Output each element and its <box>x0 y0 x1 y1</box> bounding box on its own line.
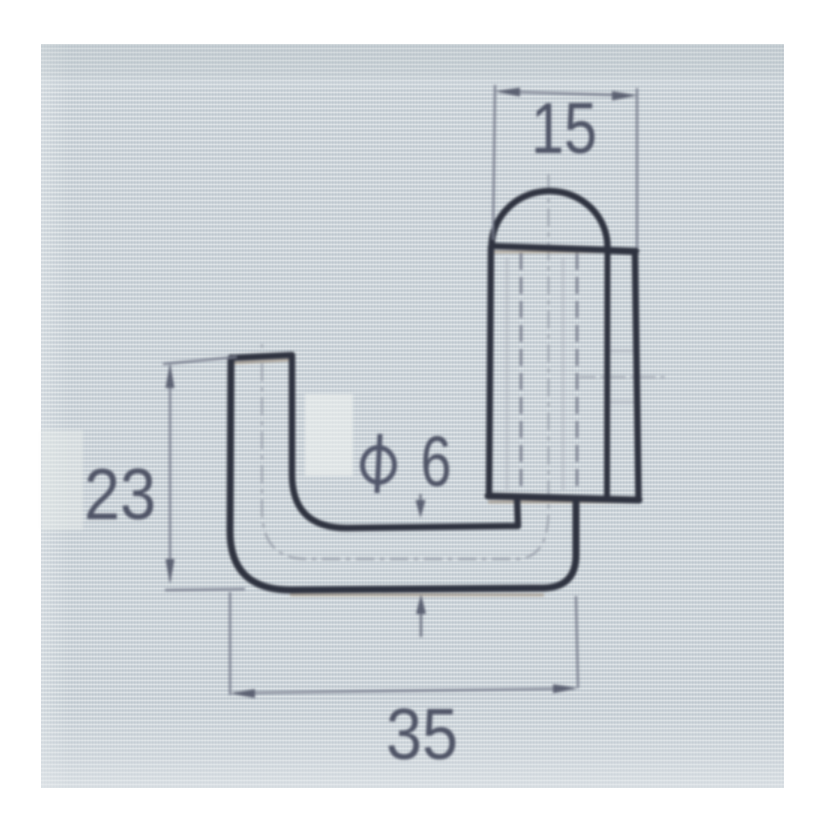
svg-text:6: 6 <box>421 423 452 502</box>
svg-text:35: 35 <box>386 695 458 775</box>
svg-text:23: 23 <box>84 455 156 535</box>
svg-text:15: 15 <box>531 89 597 169</box>
